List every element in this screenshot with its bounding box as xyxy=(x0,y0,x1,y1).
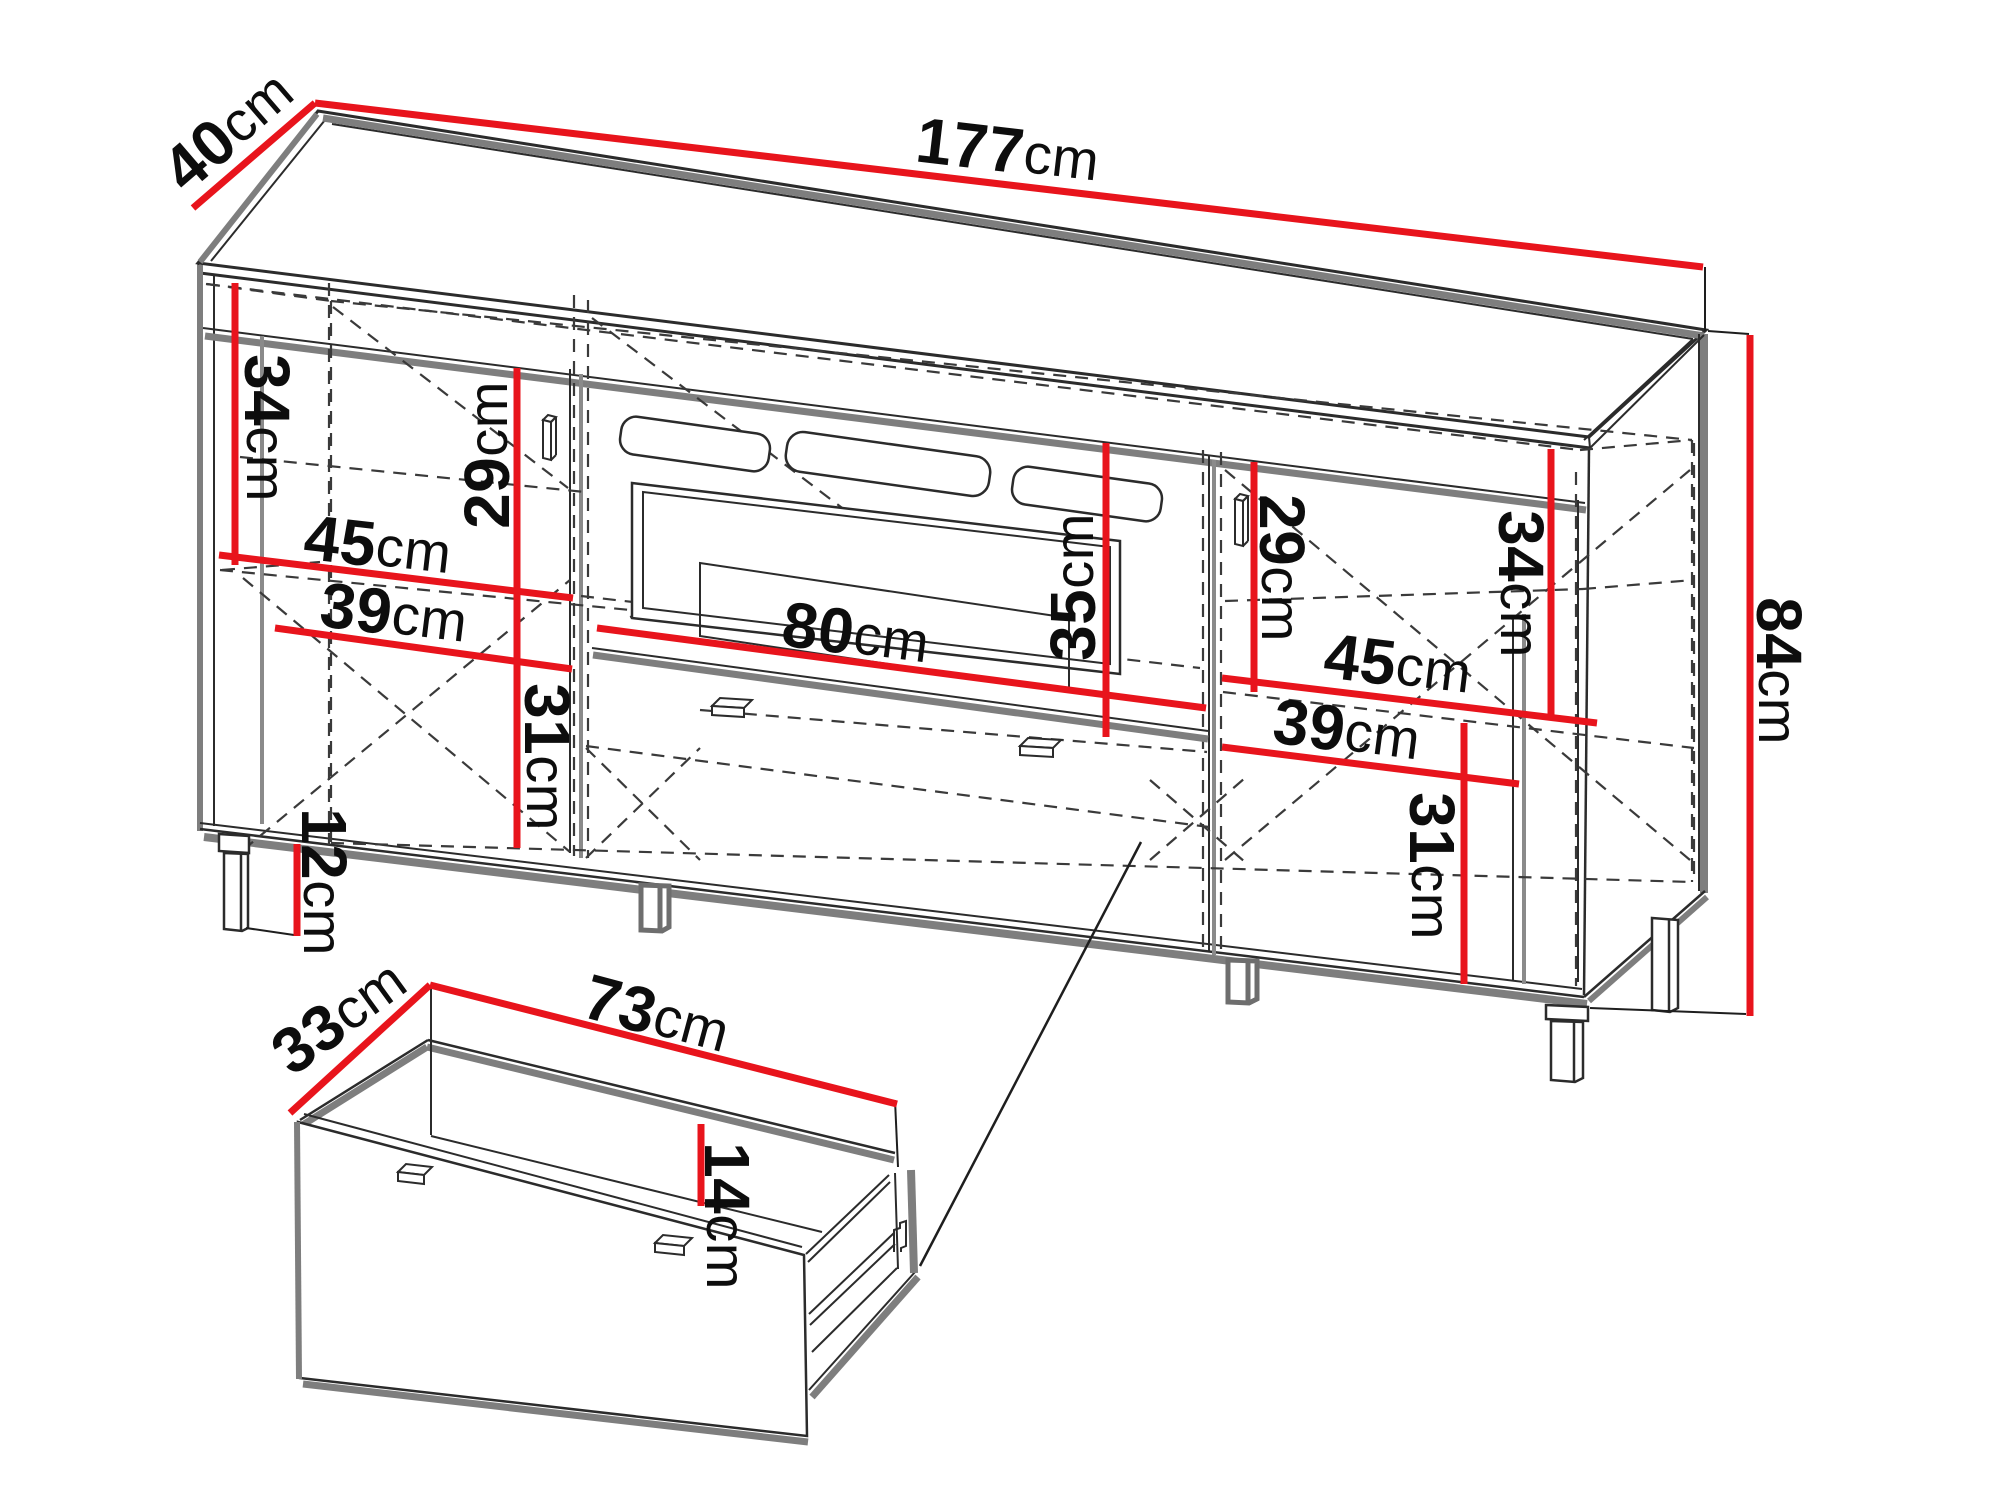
svg-text:35cm: 35cm xyxy=(1037,513,1109,661)
svg-text:29cm: 29cm xyxy=(1246,494,1318,642)
svg-text:31cm: 31cm xyxy=(1396,792,1468,940)
svg-text:29cm: 29cm xyxy=(451,381,523,529)
svg-text:12cm: 12cm xyxy=(288,808,360,956)
svg-text:14cm: 14cm xyxy=(691,1142,763,1290)
svg-text:34cm: 34cm xyxy=(1485,510,1557,658)
svg-text:84cm: 84cm xyxy=(1743,597,1815,745)
svg-text:31cm: 31cm xyxy=(511,683,583,831)
svg-text:34cm: 34cm xyxy=(231,354,303,502)
